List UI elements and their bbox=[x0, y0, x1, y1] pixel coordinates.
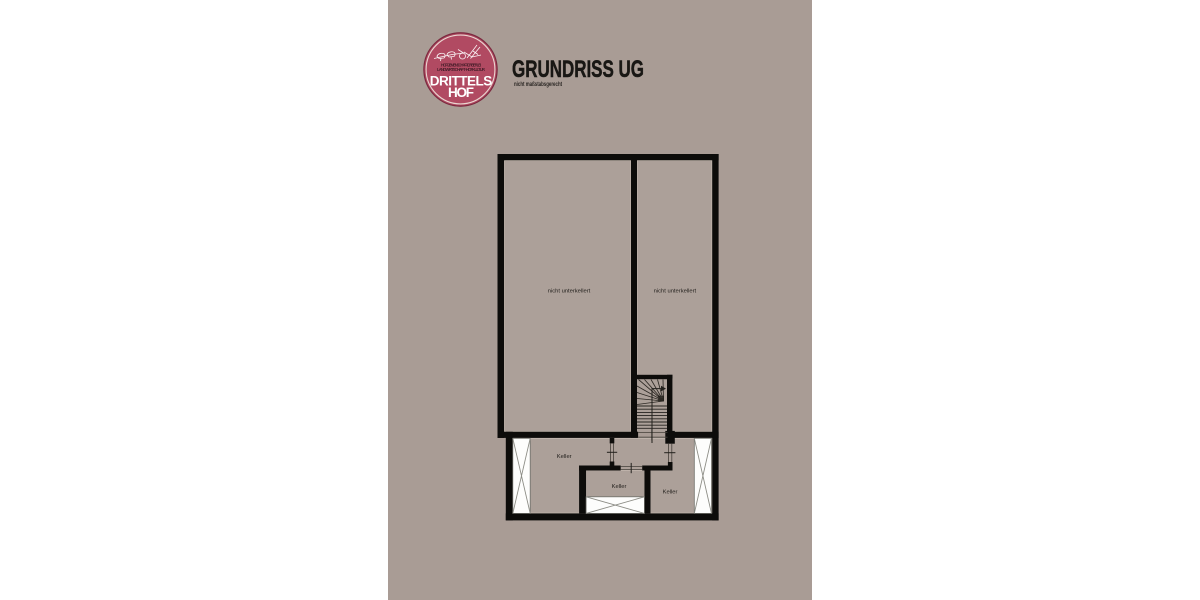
svg-text:nicht unterkellert: nicht unterkellert bbox=[548, 289, 591, 295]
svg-text:LANDWIRTSCHAFT · HOFKULTUR: LANDWIRTSCHAFT · HOFKULTUR bbox=[437, 67, 486, 72]
svg-text:Keller: Keller bbox=[663, 489, 678, 495]
svg-text:Keller: Keller bbox=[612, 484, 627, 490]
svg-text:Keller: Keller bbox=[557, 454, 572, 460]
svg-text:HOF: HOF bbox=[448, 85, 474, 100]
svg-text:nicht unterkellert: nicht unterkellert bbox=[654, 289, 697, 295]
